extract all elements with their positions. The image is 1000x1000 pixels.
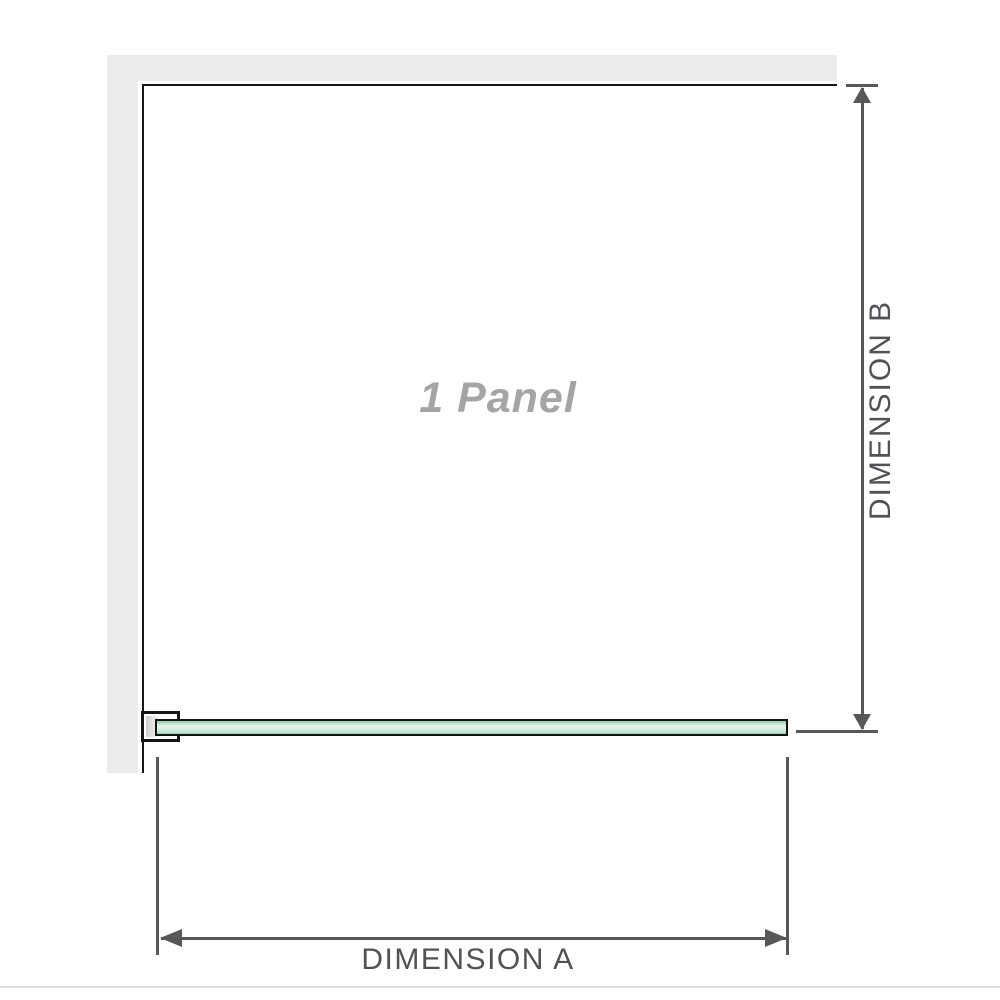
dim-a-line xyxy=(161,937,786,940)
dim-b-arrow-up-icon xyxy=(853,87,871,103)
bottom-divider xyxy=(0,986,1000,988)
wall-horizontal xyxy=(107,55,837,81)
dim-b-arrow-down-icon xyxy=(853,714,871,730)
glass-panel xyxy=(155,719,788,736)
dim-b-label: DIMENSION B xyxy=(866,300,896,520)
dim-a-tick-right xyxy=(786,757,789,955)
dim-b-tick-bottom xyxy=(796,730,878,733)
dim-a-arrow-right-icon xyxy=(765,929,787,947)
dim-a-tick-left xyxy=(156,757,159,955)
wall-vertical xyxy=(107,55,138,773)
panel-label: 1 Panel xyxy=(338,374,658,422)
shower-panel-diagram: 1 Panel DIMENSION B DIMENSION A xyxy=(0,0,1000,1000)
dim-a-arrow-left-icon xyxy=(160,929,182,947)
dim-a-label: DIMENSION A xyxy=(268,944,668,976)
panel-area xyxy=(142,84,837,773)
